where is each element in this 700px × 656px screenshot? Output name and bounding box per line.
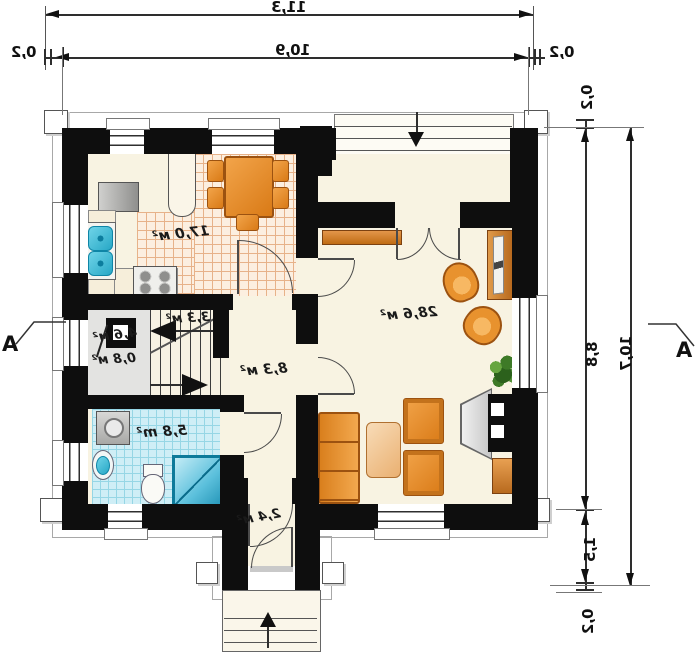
tv-screen bbox=[493, 235, 504, 294]
firewood-box bbox=[492, 458, 514, 494]
window-sill bbox=[106, 118, 150, 130]
corner-pillar bbox=[40, 498, 64, 522]
main-entrance-arrow bbox=[260, 612, 276, 627]
porch-entrance-arrow bbox=[408, 132, 424, 147]
dim-tick bbox=[534, 49, 536, 65]
dim-arrow bbox=[581, 496, 589, 509]
dim-tick bbox=[576, 589, 594, 591]
section-cut-icon bbox=[10, 306, 68, 348]
dim-label-side-eave: 0,2 bbox=[579, 606, 597, 636]
room-label-stair-landing: 3,3 м² bbox=[160, 310, 217, 328]
shower bbox=[172, 455, 224, 508]
wall-vestibule-top bbox=[292, 478, 319, 504]
room-label-understair-b: 0,8 м² bbox=[86, 351, 143, 369]
window-sill bbox=[52, 440, 64, 486]
window-sill bbox=[208, 118, 280, 130]
window bbox=[212, 128, 274, 154]
window bbox=[62, 443, 88, 481]
extension-line bbox=[544, 127, 644, 128]
window-sill bbox=[536, 295, 548, 393]
wall-kitchen-south bbox=[88, 294, 233, 310]
stairs-down-arrow bbox=[182, 374, 208, 396]
floor-porch bbox=[332, 158, 512, 204]
dim-label-side-eave: 0,2 bbox=[578, 82, 596, 112]
porch-arrow-stem bbox=[416, 112, 418, 134]
room-label-bathroom: 5,8 m² bbox=[134, 423, 191, 442]
section-label: A bbox=[2, 332, 18, 356]
window bbox=[110, 128, 144, 154]
dim-tick bbox=[539, 49, 541, 65]
extension-line bbox=[528, 47, 529, 115]
dim-label-eave: 0,2 bbox=[8, 43, 40, 61]
wall-bathroom-east bbox=[220, 395, 244, 412]
window bbox=[108, 504, 142, 530]
wall-bathroom-north bbox=[88, 395, 220, 409]
fireplace-opening bbox=[491, 403, 504, 416]
toilet-bowl bbox=[141, 474, 165, 504]
porch-step-line bbox=[334, 126, 512, 127]
stairs-arrow-stem bbox=[150, 384, 182, 386]
kitchen-sink-bowl bbox=[88, 251, 113, 276]
dining-table bbox=[224, 156, 274, 218]
fridge bbox=[98, 182, 139, 212]
dining-chair bbox=[272, 187, 289, 209]
wall-bottom bbox=[62, 504, 222, 530]
dim-arrow bbox=[46, 10, 59, 18]
porch-pillar bbox=[510, 128, 538, 208]
dim-label-side-entry: 1,5 bbox=[581, 534, 599, 564]
dim-arrow bbox=[581, 512, 589, 525]
entrance-step-line bbox=[224, 630, 317, 631]
stairs-arrow-stem bbox=[176, 330, 213, 332]
armchair bbox=[403, 398, 444, 444]
dim-tick bbox=[50, 49, 52, 65]
washing-machine-drum bbox=[104, 418, 124, 438]
dim-label-inner-width: 10,9 bbox=[271, 41, 315, 59]
dim-tick bbox=[576, 582, 594, 584]
kitchen-sink-bowl bbox=[88, 226, 113, 251]
window bbox=[62, 205, 88, 273]
armchair bbox=[403, 450, 444, 496]
corner-pillar bbox=[322, 562, 344, 584]
dining-chair bbox=[207, 187, 224, 209]
dining-chair bbox=[207, 160, 224, 182]
dim-arrow bbox=[514, 53, 527, 61]
dim-arrow bbox=[626, 128, 634, 141]
fireplace-opening bbox=[491, 425, 504, 438]
dim-label-eave: 0,2 bbox=[546, 43, 578, 61]
main-entrance-arrow-stem bbox=[267, 627, 269, 648]
dim-label-total-width: 11,3 bbox=[269, 0, 309, 16]
wall-kitchen-living bbox=[296, 128, 318, 258]
window bbox=[378, 504, 444, 530]
section-label: A bbox=[676, 338, 692, 362]
window-sill bbox=[374, 528, 450, 540]
dim-arrow bbox=[519, 10, 532, 18]
window-sill bbox=[52, 202, 64, 278]
porch-step-line bbox=[334, 150, 512, 151]
sideboard bbox=[322, 230, 402, 245]
entrance-step-line bbox=[224, 642, 317, 643]
sofa bbox=[318, 412, 360, 504]
wall-porch-back bbox=[460, 202, 512, 228]
wall-hall-living bbox=[296, 296, 318, 344]
kitchen-divider-stub bbox=[168, 154, 196, 217]
wall-vestibule-top bbox=[222, 478, 248, 504]
extension-line bbox=[62, 47, 63, 115]
window bbox=[512, 298, 538, 388]
wall-right bbox=[512, 206, 538, 298]
corner-pillar bbox=[196, 562, 218, 584]
coffee-table bbox=[366, 422, 401, 478]
wall-vestibule-right bbox=[295, 504, 320, 590]
dining-chair bbox=[236, 214, 259, 231]
dim-tick bbox=[576, 119, 594, 121]
floor-plan: 11,3 0,2 10,9 0,2 0,2 8,8 1,5 0,2 10,7 A… bbox=[0, 0, 700, 656]
bathroom-sink-bowl bbox=[96, 456, 110, 475]
extension-line bbox=[556, 592, 602, 593]
dim-arrow bbox=[581, 129, 589, 142]
dim-label-side-total: 10,7 bbox=[617, 333, 635, 373]
extension-line bbox=[556, 509, 602, 510]
extension-line bbox=[550, 585, 650, 586]
window-sill bbox=[104, 528, 148, 540]
dim-tick bbox=[44, 49, 46, 65]
dim-arrow bbox=[581, 569, 589, 582]
dim-label-side-main: 8,8 bbox=[583, 339, 601, 369]
dining-chair bbox=[272, 160, 289, 182]
wall-porch-back bbox=[310, 202, 395, 228]
